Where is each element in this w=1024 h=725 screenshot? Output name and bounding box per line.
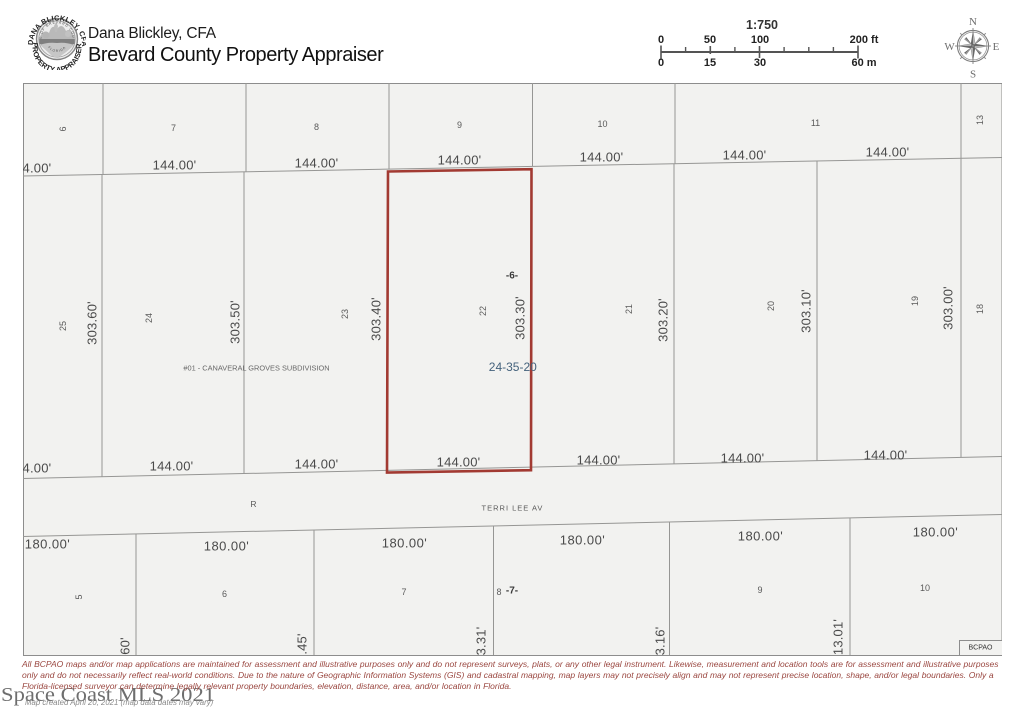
svg-text:E: E — [993, 41, 1000, 53]
svg-text:W: W — [944, 41, 955, 53]
svg-text:N: N — [969, 16, 977, 28]
svg-text:S: S — [970, 69, 976, 81]
